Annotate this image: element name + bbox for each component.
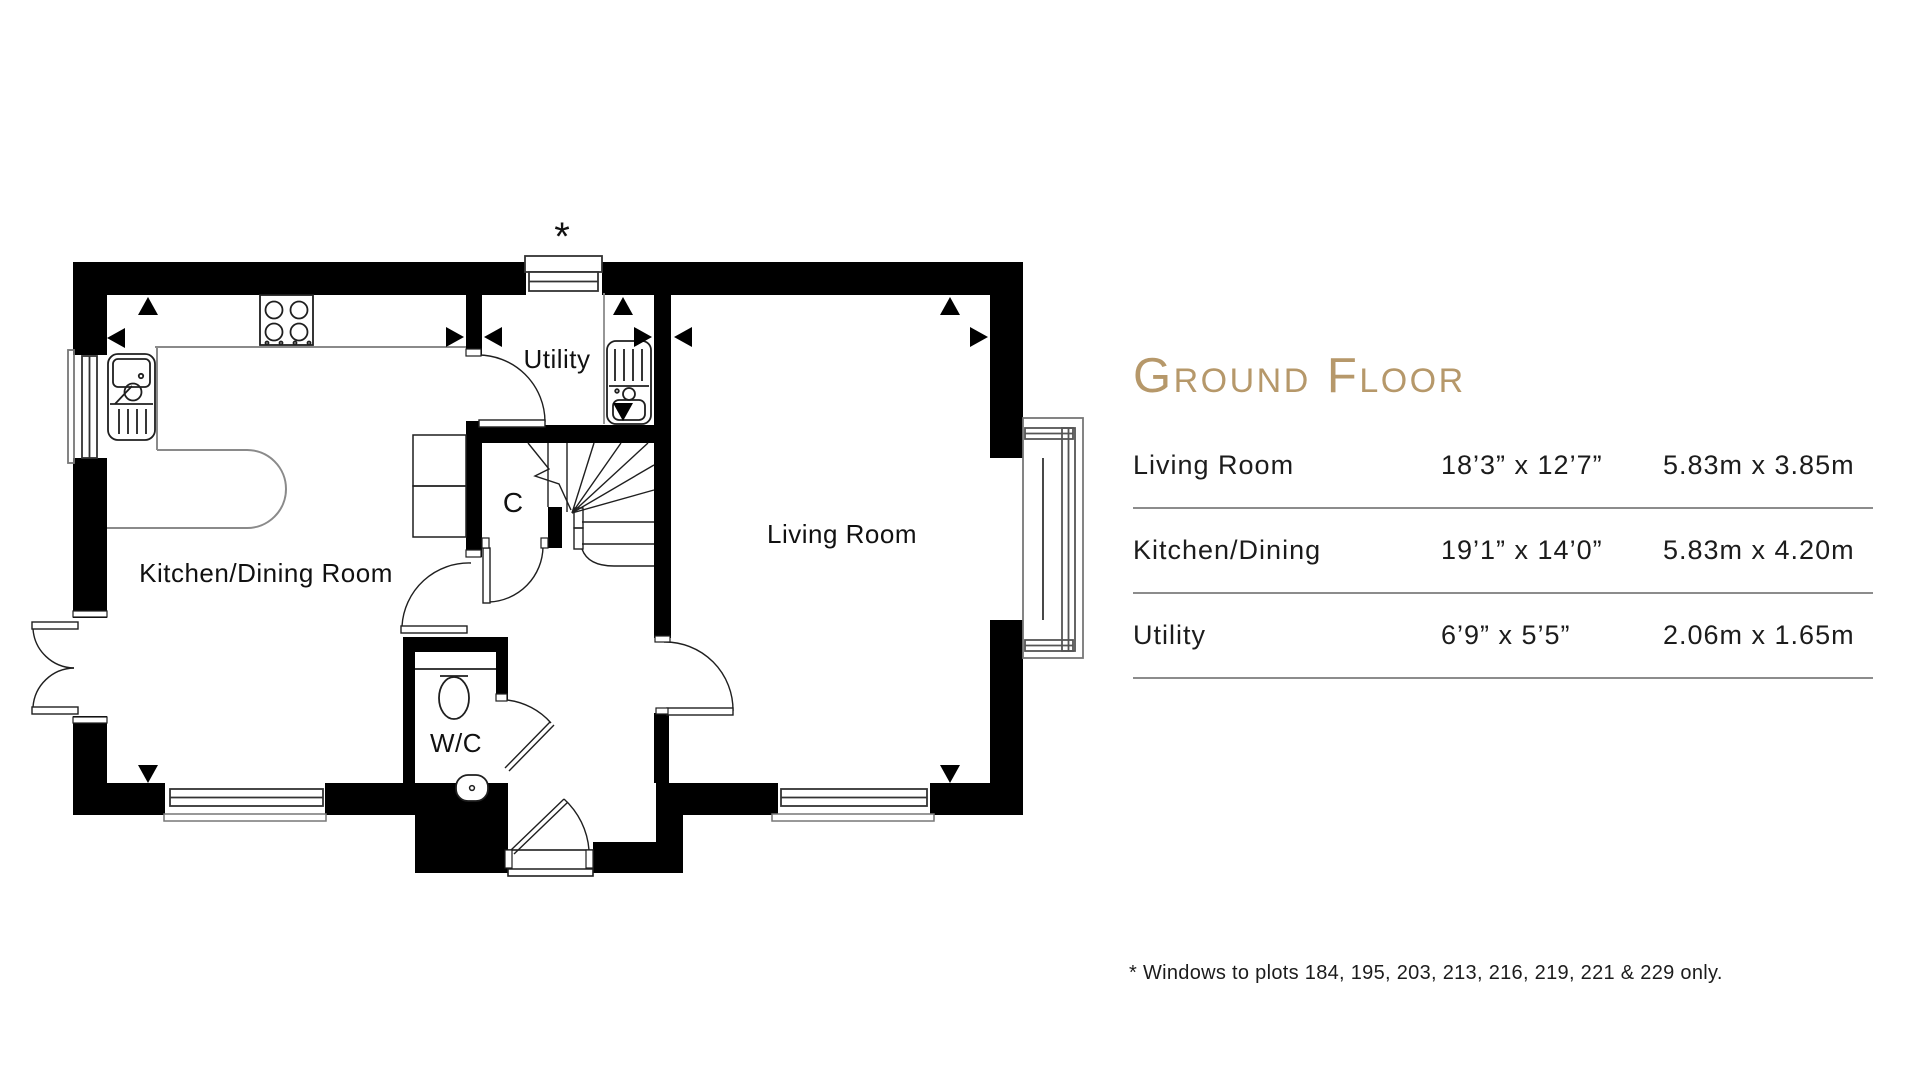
table-row: Kitchen/Dining 19’1” x 14’0” 5.83m x 4.2… bbox=[1133, 509, 1873, 594]
floorplan-page: { "title": "Ground Floor", "accent_color… bbox=[0, 0, 1920, 1080]
room-name: Kitchen/Dining bbox=[1133, 535, 1441, 566]
room-imperial-size: 6’9” x 5’5” bbox=[1441, 620, 1663, 651]
table-row: Living Room 18’3” x 12’7” 5.83m x 3.85m bbox=[1133, 424, 1873, 509]
basin bbox=[456, 775, 488, 801]
room-imperial-size: 18’3” x 12’7” bbox=[1441, 450, 1663, 481]
top-wall-window bbox=[525, 256, 602, 295]
page-title: Ground Floor bbox=[1133, 352, 1875, 401]
label-wc: W/C bbox=[430, 728, 482, 758]
kitchen-bottom-window bbox=[164, 783, 326, 821]
windows-footnote: * Windows to plots 184, 195, 203, 213, 2… bbox=[1129, 962, 1723, 985]
label-kitchen: Kitchen/Dining Room bbox=[139, 558, 393, 588]
label-utility: Utility bbox=[523, 344, 590, 374]
room-name: Living Room bbox=[1133, 450, 1441, 481]
info-panel: Ground Floor bbox=[1133, 352, 1875, 401]
label-cupboard: C bbox=[503, 487, 523, 518]
dimensions-table: Living Room 18’3” x 12’7” 5.83m x 3.85m … bbox=[1133, 424, 1873, 679]
label-living-room: Living Room bbox=[767, 519, 917, 549]
window-note-marker: * bbox=[554, 215, 570, 259]
table-row: Utility 6’9” x 5’5” 2.06m x 1.65m bbox=[1133, 594, 1873, 679]
room-imperial-size: 19’1” x 14’0” bbox=[1441, 535, 1663, 566]
room-metric-size: 2.06m x 1.65m bbox=[1663, 620, 1873, 651]
living-bottom-window bbox=[772, 783, 934, 821]
room-metric-size: 5.83m x 4.20m bbox=[1663, 535, 1873, 566]
room-name: Utility bbox=[1133, 620, 1441, 651]
room-metric-size: 5.83m x 3.85m bbox=[1663, 450, 1873, 481]
